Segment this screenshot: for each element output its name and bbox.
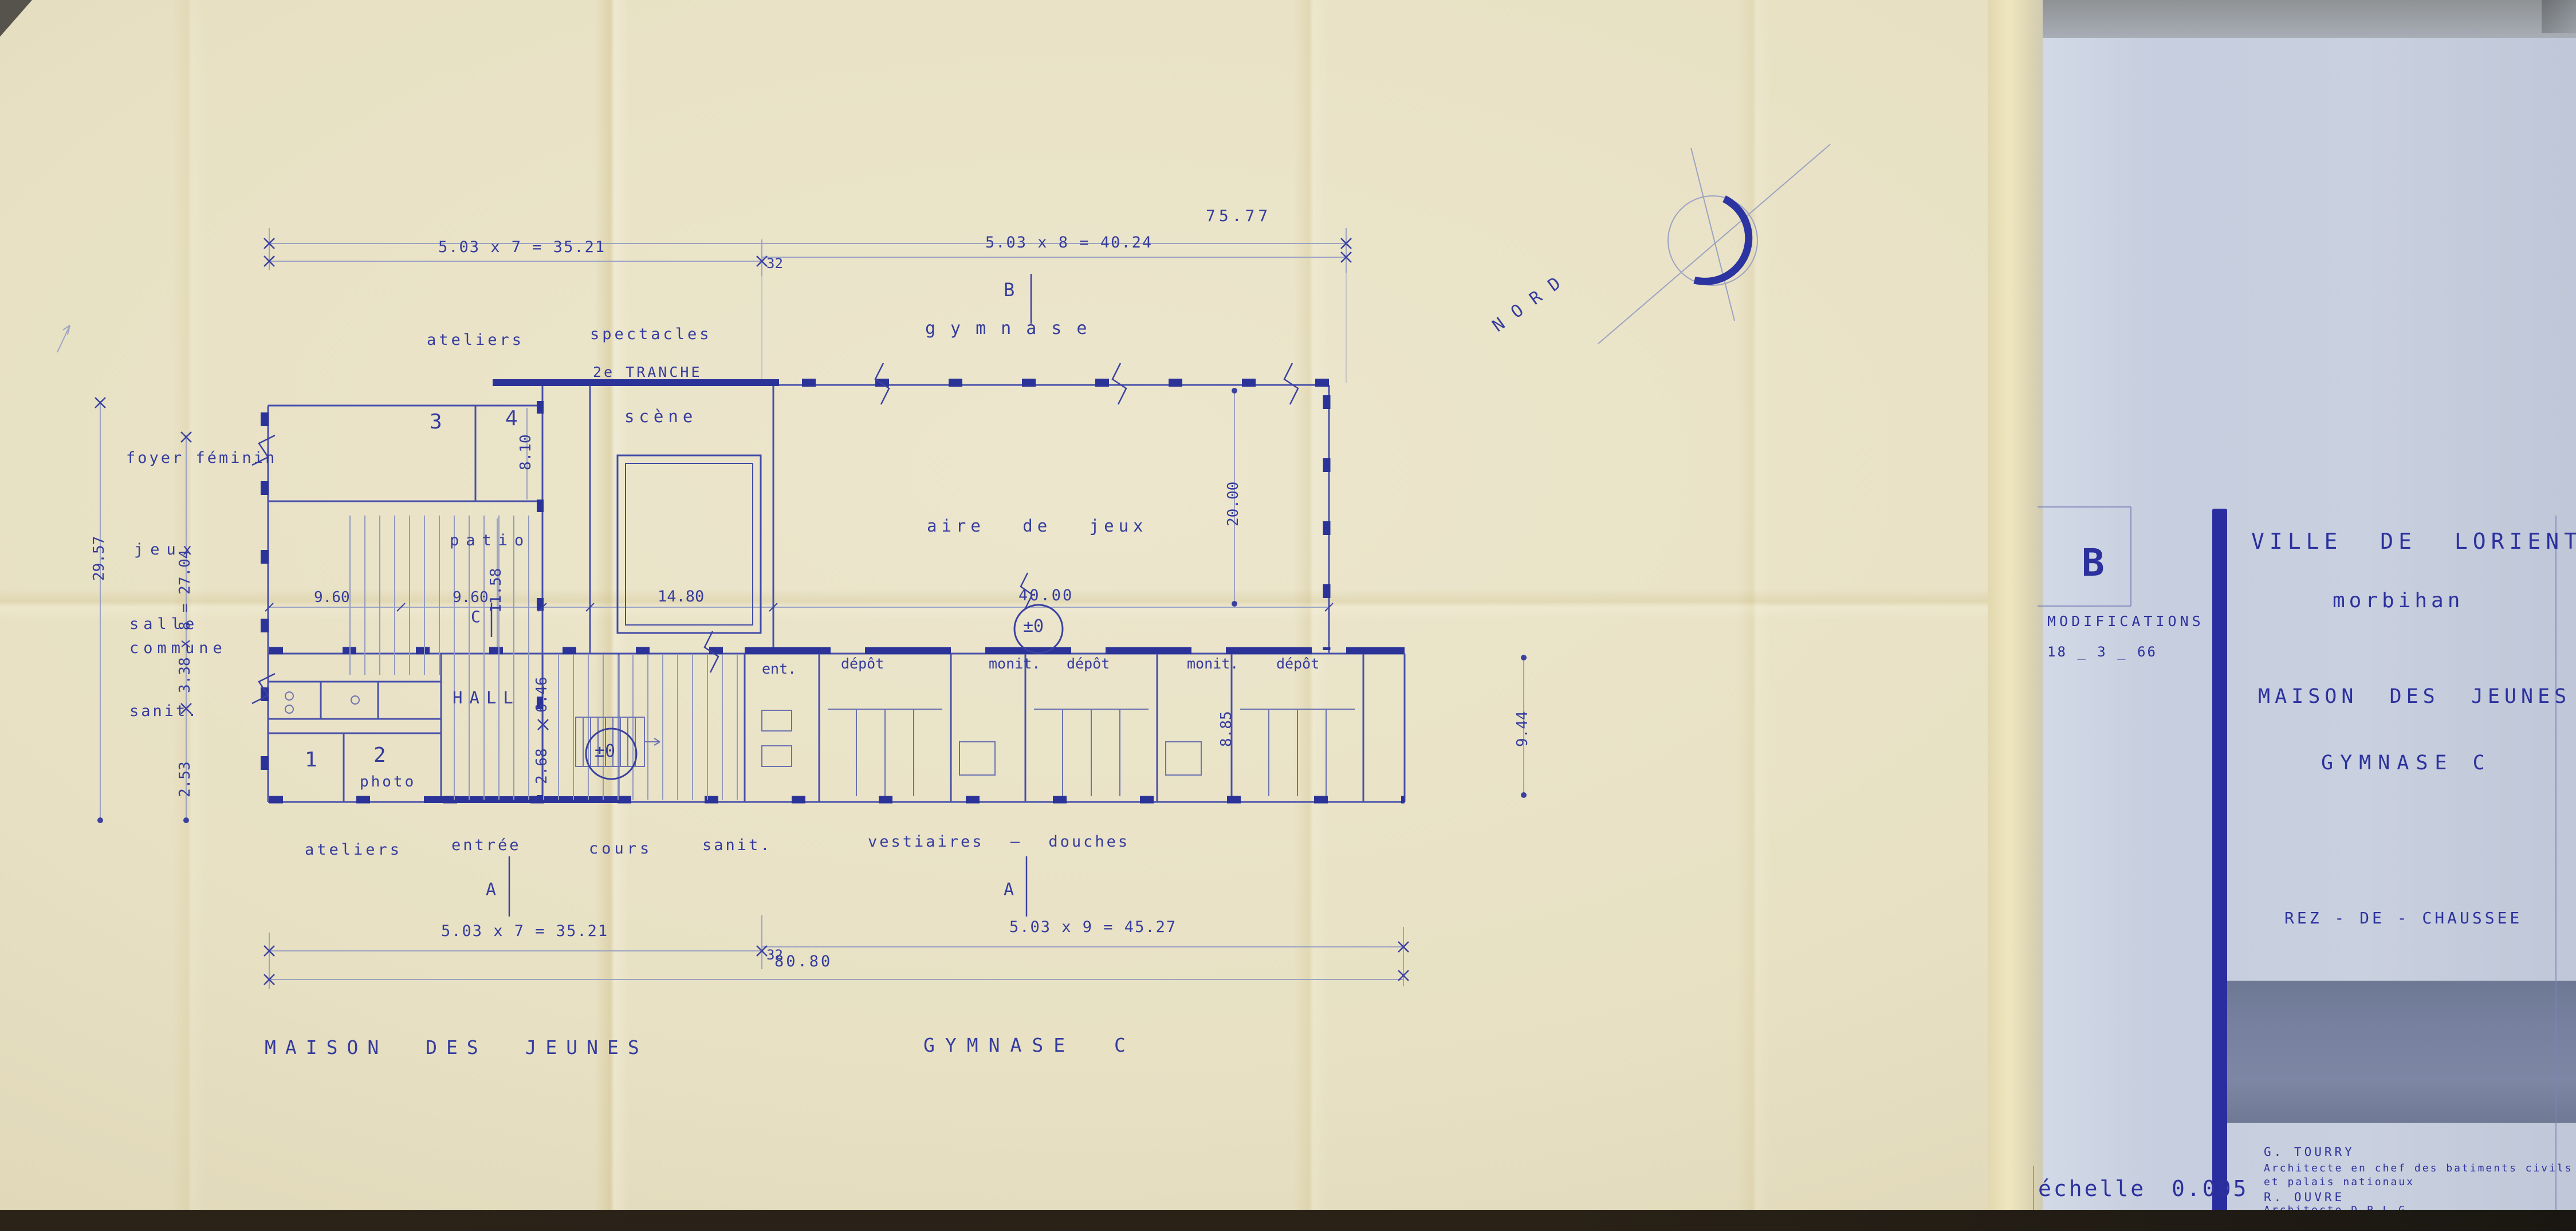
dim-bottom-overall: 80.80 [774,954,832,970]
room-hall: HALL [453,689,520,706]
dim-left-grid: 3.38 x 8 = 27.04 [178,550,193,693]
room-depot-3: dépôt [1276,656,1319,671]
level-marker-1: ±0 [1023,618,1044,636]
dim-vest-depth: 8.85 [1219,711,1234,747]
room-depot-1: dépôt [841,656,884,671]
revision-letter: B [2082,543,2105,583]
room-scene: scène [624,408,697,425]
architect1-title-1: Architecte en chef des batiments civils [2264,1163,2573,1174]
title-department: morbihan [2333,590,2464,612]
scale-label: échelle 0.005 [2038,1178,2248,1201]
dim-gym-width: 20.00 [1226,482,1241,526]
stage [618,455,761,633]
dim-top-overall: 75.77 [1206,207,1271,224]
zone-ateliers-top: ateliers [427,332,524,348]
room-depot-2: dépôt [1067,656,1110,671]
modification-date: 18 _ 3 _ 66 [2047,645,2157,659]
room-3: 3 [430,411,442,433]
dim-top-right: 5.03 x 8 = 40.24 [985,235,1153,251]
dim-left-overall: 29.57 [92,536,107,581]
zone-tranche: 2e TRANCHE [593,365,702,380]
section-marker-a2: A [1004,881,1014,899]
level-marker-2: ±0 [595,742,615,761]
room-4: 4 [505,408,518,430]
zone-foyer: foyer féminin [126,450,277,466]
blueprint-sheet: 75.77 5.03 x 7 = 35.21 32 5.03 x 8 = 40.… [0,0,2576,1231]
architect2-name: R. OUVRE [2264,1191,2345,1204]
pencil-arrow [57,325,70,352]
zone-sanit-left: sanit. [129,703,199,719]
dim-bottom-left: 5.03 x 7 = 35.21 [441,923,608,939]
dim-hall-lower: 2.68 [534,748,550,784]
zone-gymnase: gymnase [925,320,1102,338]
dim-top-left: 5.03 x 7 = 35.21 [438,239,605,255]
title-project: MAISON DES JEUNES [2258,686,2571,707]
architect1-title-2: et palais nationaux [2264,1177,2414,1188]
room-1: 1 [305,749,317,771]
dimension-ticks [95,238,1409,985]
bottom-cours: cours [589,841,652,857]
footer-title-right: GYMNASE C [923,1036,1136,1056]
dim-patio-depth: 11.58 [489,568,504,613]
dim-left-end: 2.53 [178,761,193,797]
footer-title-left: MAISON DES JEUNES [265,1038,648,1058]
room-photo: photo [360,774,416,790]
dim-gym-length: 40.00 [1018,588,1073,604]
section-marker-a1: A [486,881,496,899]
dim-stage-width: 14.80 [658,589,704,605]
bottom-vestiaires: vestiaires — douches [868,834,1130,850]
room-2: 2 [373,745,386,766]
room-patio: patio [450,533,530,549]
scan-bottom-edge [0,1210,2576,1231]
dim-right-height: 9.44 [1515,711,1531,747]
bottom-sanit: sanit. [702,837,772,854]
title-level: REZ - DE - CHAUSSEE [2284,910,2522,926]
title-city: VILLE DE LORIENT [2251,530,2576,553]
room-ent: ent. [762,662,796,677]
north-compass [1598,144,1830,344]
room-monit-1: monit. [989,656,1040,671]
bottom-ateliers: ateliers [305,842,402,858]
section-marker-b: B [1004,281,1014,300]
zone-spectacles: spectacles [590,327,712,343]
architect1-name: G. TOURRY [2264,1146,2355,1158]
dim-room4-depth: 8.10 [518,434,534,470]
dimension-lines [100,228,1524,989]
dim-joint: 32 [766,257,783,271]
room-monit-2: monit. [1187,656,1238,671]
modifications-label: MODIFICATIONS [2047,614,2204,629]
dim-patio-w1: 9.60 [314,590,350,605]
bottom-entree: entrée [451,837,521,854]
section-marker-c: C [471,608,481,625]
title-building: GYMNASE C [2321,753,2492,774]
room-aire-de-jeux: aire de jeux [927,517,1148,534]
dim-bottom-right: 5.03 x 9 = 45.27 [1009,919,1177,935]
dim-hall-depth: 6.46 [534,677,550,713]
dim-patio-w2: 9.60 [453,590,489,605]
